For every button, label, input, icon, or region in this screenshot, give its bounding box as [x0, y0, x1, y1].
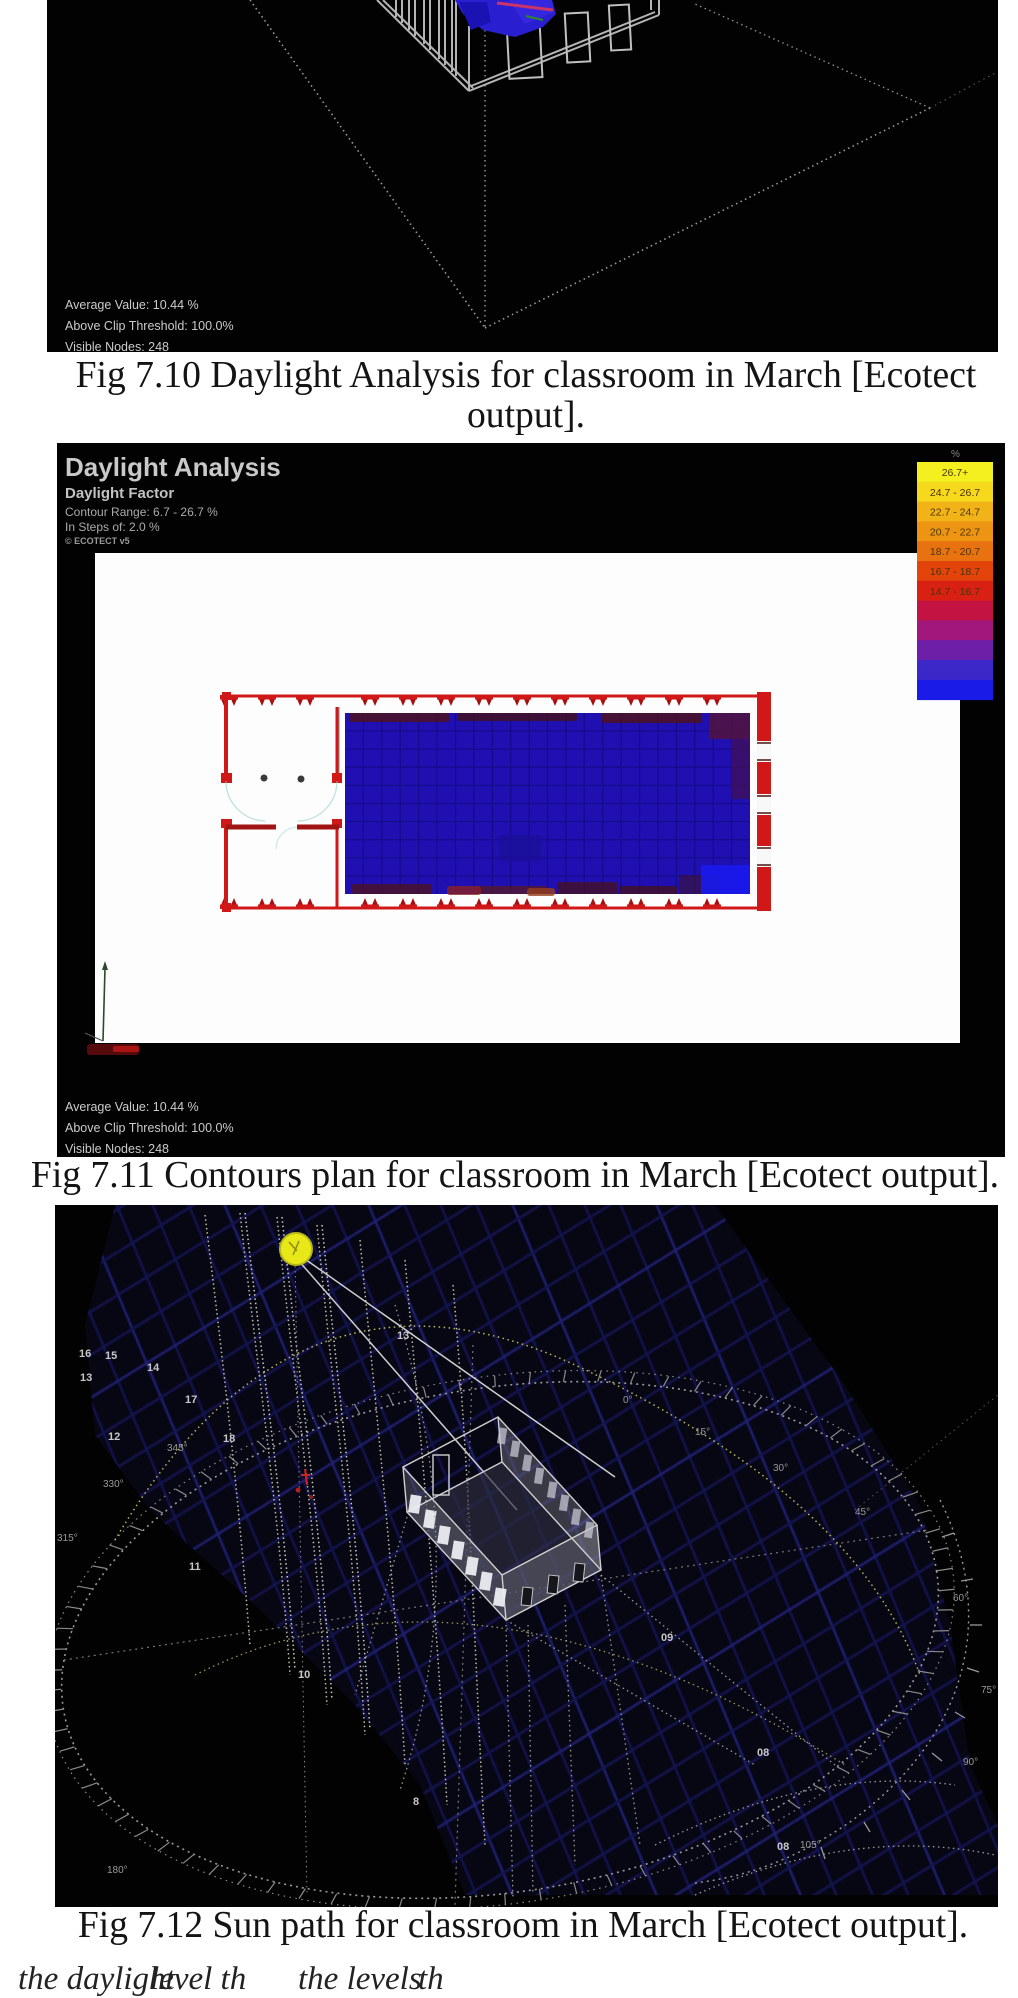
- svg-text:Visible Nodes: 248: Visible Nodes: 248: [65, 340, 169, 352]
- svg-text:08: 08: [777, 1841, 789, 1853]
- svg-text:16.7 - 18.7: 16.7 - 18.7: [930, 566, 980, 578]
- svg-text:Average Value: 10.44 %: Average Value: 10.44 %: [65, 298, 199, 312]
- svg-text:60°: 60°: [953, 1593, 968, 1604]
- svg-text:22.7 - 24.7: 22.7 - 24.7: [930, 507, 980, 519]
- svg-text:Contour Range: 6.7 - 26.7 %: Contour Range: 6.7 - 26.7 %: [65, 505, 218, 519]
- svg-text:08: 08: [757, 1747, 769, 1759]
- svg-text:Daylight Factor: Daylight Factor: [65, 485, 174, 502]
- svg-text:24.7 - 26.7: 24.7 - 26.7: [930, 487, 980, 499]
- svg-text:09: 09: [661, 1632, 673, 1644]
- svg-text:75°: 75°: [981, 1685, 996, 1696]
- svg-text:13: 13: [80, 1372, 92, 1384]
- svg-text:15°: 15°: [695, 1427, 710, 1438]
- svg-text:In Steps of: 2.0 %: In Steps of: 2.0 %: [65, 520, 160, 534]
- svg-text:Daylight Analysis: Daylight Analysis: [65, 452, 281, 482]
- svg-text:26.7+: 26.7+: [942, 467, 969, 479]
- svg-text:14.7 - 16.7: 14.7 - 16.7: [930, 586, 980, 598]
- svg-text:16: 16: [79, 1348, 91, 1360]
- svg-text:Above Clip Threshold: 100.0%: Above Clip Threshold: 100.0%: [65, 319, 234, 333]
- svg-text:345°: 345°: [167, 1443, 188, 1454]
- svg-text:45°: 45°: [855, 1507, 870, 1518]
- svg-text:10: 10: [298, 1669, 310, 1681]
- svg-text:30°: 30°: [773, 1463, 788, 1474]
- svg-text:8: 8: [413, 1796, 419, 1808]
- svg-text:© ECOTECT v5: © ECOTECT v5: [65, 536, 130, 546]
- svg-text:Above Clip Threshold: 100.0%: Above Clip Threshold: 100.0%: [65, 1121, 234, 1135]
- svg-text:180°: 180°: [107, 1865, 128, 1876]
- svg-text:Average Value: 10.44 %: Average Value: 10.44 %: [65, 1100, 199, 1114]
- svg-text:18: 18: [223, 1433, 235, 1445]
- svg-text:20.7 - 22.7: 20.7 - 22.7: [930, 526, 980, 538]
- svg-text:0°: 0°: [623, 1395, 633, 1406]
- svg-text:315°: 315°: [57, 1533, 78, 1544]
- svg-text:105°: 105°: [800, 1840, 821, 1851]
- svg-text:11: 11: [189, 1561, 201, 1573]
- svg-text:Visible Nodes: 248: Visible Nodes: 248: [65, 1142, 169, 1156]
- svg-text:12: 12: [108, 1431, 120, 1443]
- svg-text:90°: 90°: [963, 1757, 978, 1768]
- svg-text:15: 15: [105, 1350, 117, 1362]
- svg-text:14: 14: [147, 1362, 160, 1374]
- svg-text:330°: 330°: [103, 1479, 124, 1490]
- svg-text:18.7 - 20.7: 18.7 - 20.7: [930, 546, 980, 558]
- svg-text:%: %: [951, 449, 960, 460]
- svg-text:17: 17: [185, 1394, 197, 1406]
